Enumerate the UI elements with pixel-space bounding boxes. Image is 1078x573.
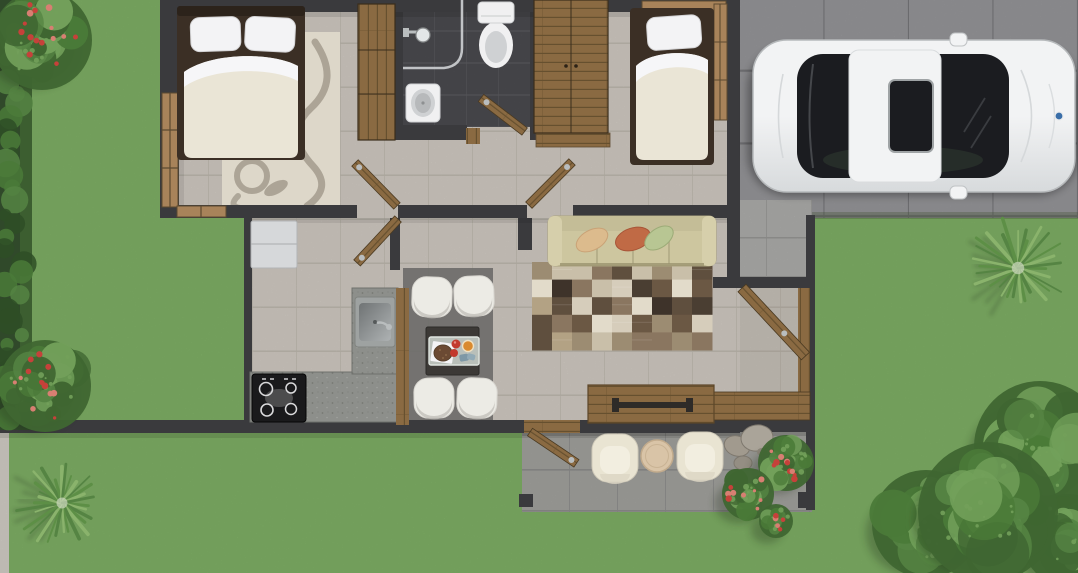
flower-bush-mid-left bbox=[0, 340, 91, 432]
living-rug bbox=[532, 262, 713, 351]
car-mirror bbox=[950, 33, 967, 46]
patio-armchair bbox=[677, 432, 723, 482]
sideboard bbox=[588, 385, 714, 423]
car-mirror bbox=[950, 186, 967, 199]
bedroom1-wardrobe bbox=[358, 4, 395, 140]
kitchen-sink bbox=[355, 297, 395, 347]
floor-plan-canvas bbox=[0, 0, 1078, 573]
counter-wood-edge bbox=[396, 288, 409, 425]
breakfast-tray bbox=[429, 337, 479, 365]
patio-armchair bbox=[592, 434, 638, 484]
sofa bbox=[548, 216, 716, 266]
car bbox=[747, 33, 1078, 199]
bedroom1-double-bed bbox=[177, 6, 305, 160]
toilet bbox=[478, 2, 514, 68]
bedroom2-single-bed bbox=[630, 8, 714, 165]
bathroom-sink bbox=[406, 84, 440, 122]
bedroom2-wardrobe bbox=[534, 0, 608, 133]
wood-deck bbox=[713, 392, 810, 420]
car-sunroof bbox=[889, 80, 933, 152]
floor-plan-render bbox=[0, 0, 1078, 573]
cooktop bbox=[252, 374, 306, 422]
car-badge bbox=[1055, 112, 1063, 120]
